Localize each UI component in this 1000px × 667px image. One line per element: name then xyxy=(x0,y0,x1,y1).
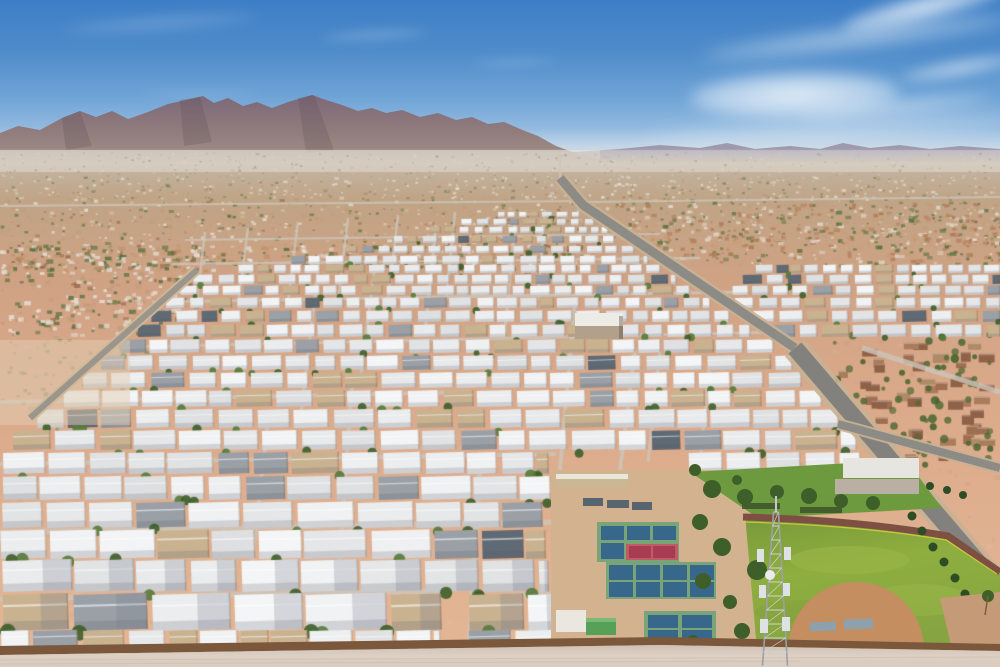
commercial-parking xyxy=(835,479,919,494)
antenna-panel xyxy=(784,547,791,560)
antenna-panel xyxy=(783,583,790,596)
commercial-building xyxy=(843,458,919,478)
grass-patch xyxy=(790,546,910,574)
ground-structures xyxy=(0,0,1000,667)
hedge-bush xyxy=(951,574,960,583)
red-court xyxy=(629,546,651,558)
recreation-complex xyxy=(0,313,1000,667)
tree-canopy xyxy=(723,595,737,609)
hedge-bush xyxy=(943,486,951,494)
dugout-roof xyxy=(810,622,836,632)
tree-canopy xyxy=(734,623,750,639)
tree-canopy xyxy=(703,480,721,498)
antenna-panel xyxy=(782,617,790,631)
pickleball-court xyxy=(636,582,660,597)
microwave-dish xyxy=(765,570,775,580)
tree-canopy xyxy=(801,488,817,504)
tree-canopy xyxy=(866,496,880,510)
pickleball-court xyxy=(682,615,712,628)
maintenance-building-roof xyxy=(556,474,628,479)
pickleball-court xyxy=(609,582,633,597)
pickleball-court xyxy=(627,526,650,540)
antenna-panel xyxy=(760,619,768,633)
hedge-bush xyxy=(940,558,949,567)
pickleball-court xyxy=(601,526,624,540)
red-court xyxy=(653,546,675,558)
pickleball-court xyxy=(648,615,678,628)
storage-trailer xyxy=(607,500,629,508)
hedge-bush xyxy=(959,491,967,499)
pickleball-court xyxy=(609,565,633,580)
tree-canopy xyxy=(713,538,731,556)
pickleball-court xyxy=(653,526,676,540)
storage-trailer xyxy=(583,498,603,506)
hedge-bush xyxy=(929,543,938,552)
antenna-panel xyxy=(759,585,766,598)
storage-trailer xyxy=(632,502,652,510)
dugout-roof xyxy=(844,618,873,629)
clubhouse-shadow xyxy=(619,316,623,339)
pickleball-court xyxy=(636,565,660,580)
white-awning-building xyxy=(556,610,586,632)
pickleball-court xyxy=(663,582,687,597)
tree-canopy xyxy=(695,573,711,589)
hedge-bush xyxy=(918,527,927,536)
pickleball-court xyxy=(663,565,687,580)
hedge-bush xyxy=(908,512,917,521)
aerial-photo xyxy=(0,0,1000,667)
tree-canopy xyxy=(692,514,708,530)
tree-canopy xyxy=(737,489,753,505)
clubhouse-roof xyxy=(575,313,623,326)
left-boundary-road xyxy=(30,270,197,418)
tree-canopy xyxy=(732,475,742,485)
pickleball-court xyxy=(601,543,624,559)
hedge-bush xyxy=(926,482,934,490)
tree-canopy xyxy=(689,464,701,476)
tree-canopy xyxy=(747,560,767,580)
tree-canopy xyxy=(834,494,848,508)
antenna-panel xyxy=(757,549,764,562)
green-roof-highlight xyxy=(586,618,616,622)
batting-cage xyxy=(800,507,842,513)
